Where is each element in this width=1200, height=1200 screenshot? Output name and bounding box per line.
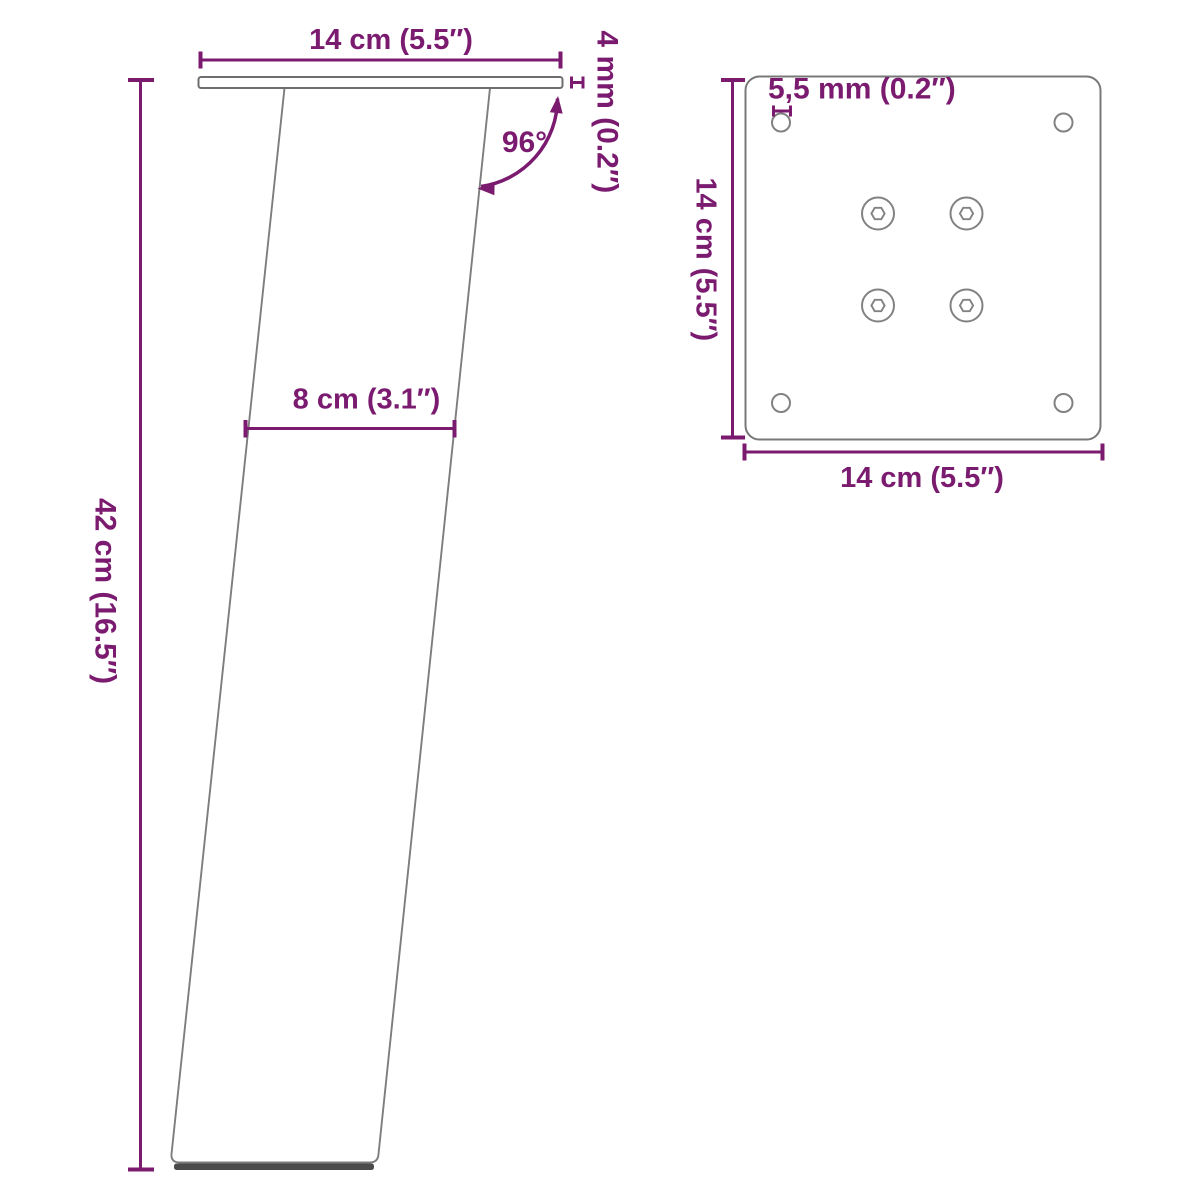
svg-text:14 cm (5.5″): 14 cm (5.5″)	[840, 462, 1004, 494]
svg-text:8 cm (3.1″): 8 cm (3.1″)	[293, 384, 441, 416]
svg-text:4 mm (0.2″): 4 mm (0.2″)	[591, 30, 624, 193]
svg-text:42 cm (16.5″): 42 cm (16.5″)	[89, 498, 122, 684]
svg-text:96°: 96°	[502, 126, 547, 159]
svg-text:5,5 mm (0.2″): 5,5 mm (0.2″)	[768, 73, 956, 106]
svg-text:14 cm (5.5″): 14 cm (5.5″)	[690, 177, 722, 341]
svg-text:14 cm (5.5″): 14 cm (5.5″)	[309, 24, 473, 56]
